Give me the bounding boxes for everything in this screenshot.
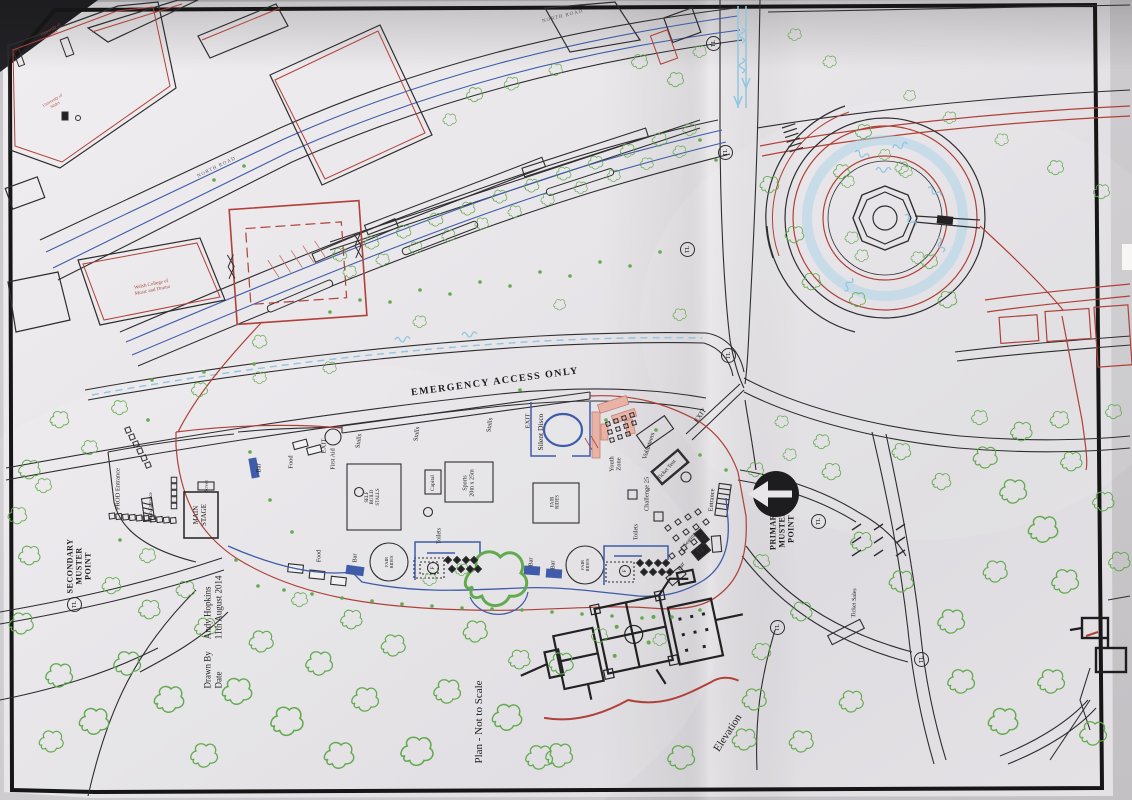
site-plan-drawing (0, 0, 1132, 800)
photographed-site-plan: NORTH ROAD NORTH ROAD EMERGENCY ACCESS O… (0, 0, 1132, 800)
